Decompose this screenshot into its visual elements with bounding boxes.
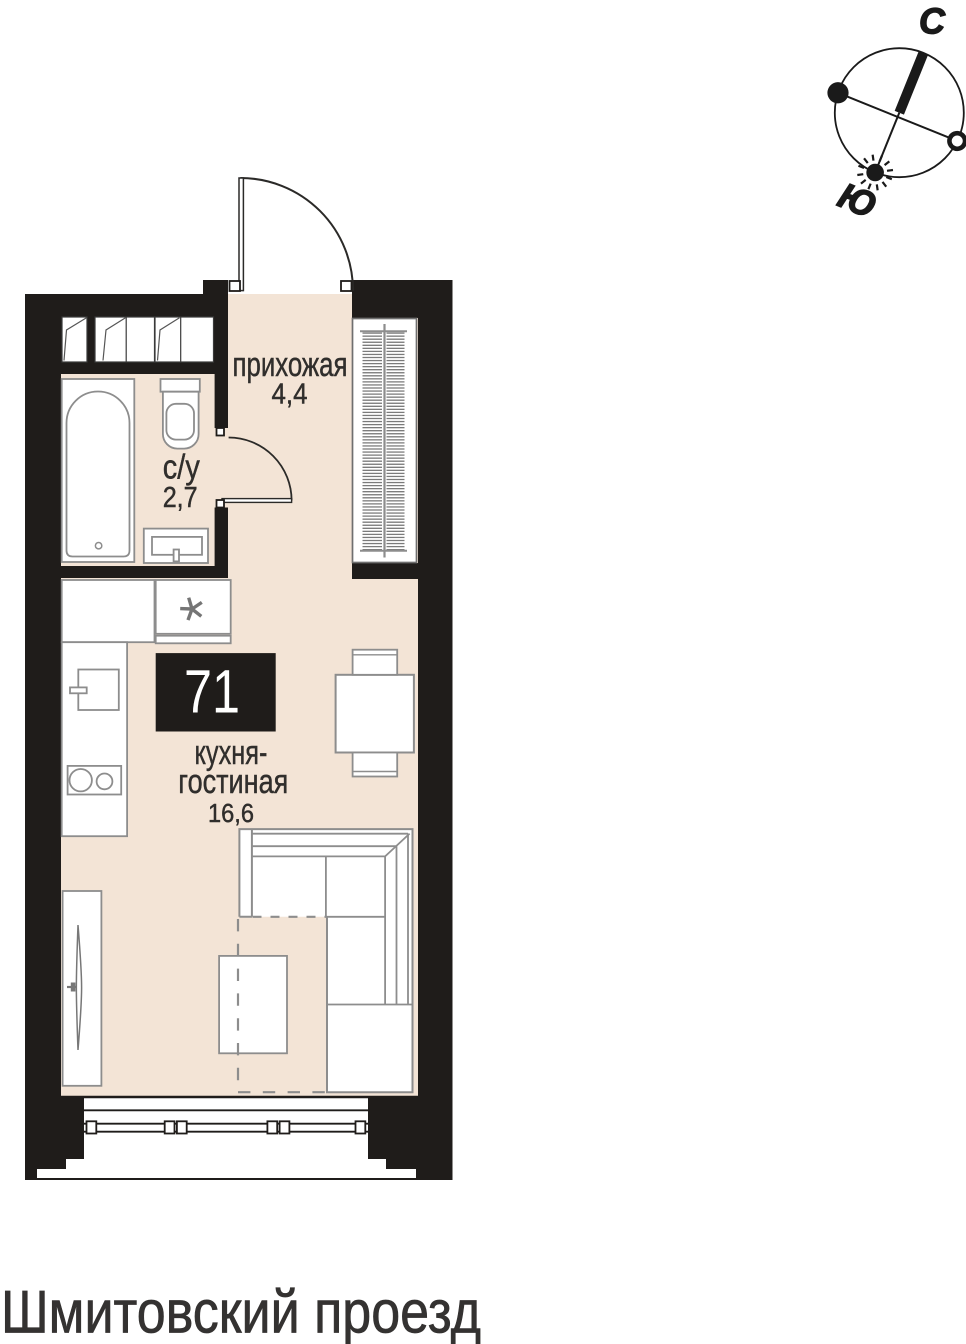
svg-text:Шмитовский проезд: Шмитовский проезд	[1, 1278, 481, 1344]
svg-text:16,6: 16,6	[208, 798, 254, 828]
svg-text:2,7: 2,7	[163, 482, 198, 514]
svg-text:с/у: с/у	[163, 449, 201, 487]
svg-text:С: С	[919, 1, 946, 42]
svg-text:гостиная: гостиная	[178, 763, 288, 801]
svg-text:71: 71	[184, 658, 240, 726]
svg-text:4,4: 4,4	[272, 379, 308, 411]
